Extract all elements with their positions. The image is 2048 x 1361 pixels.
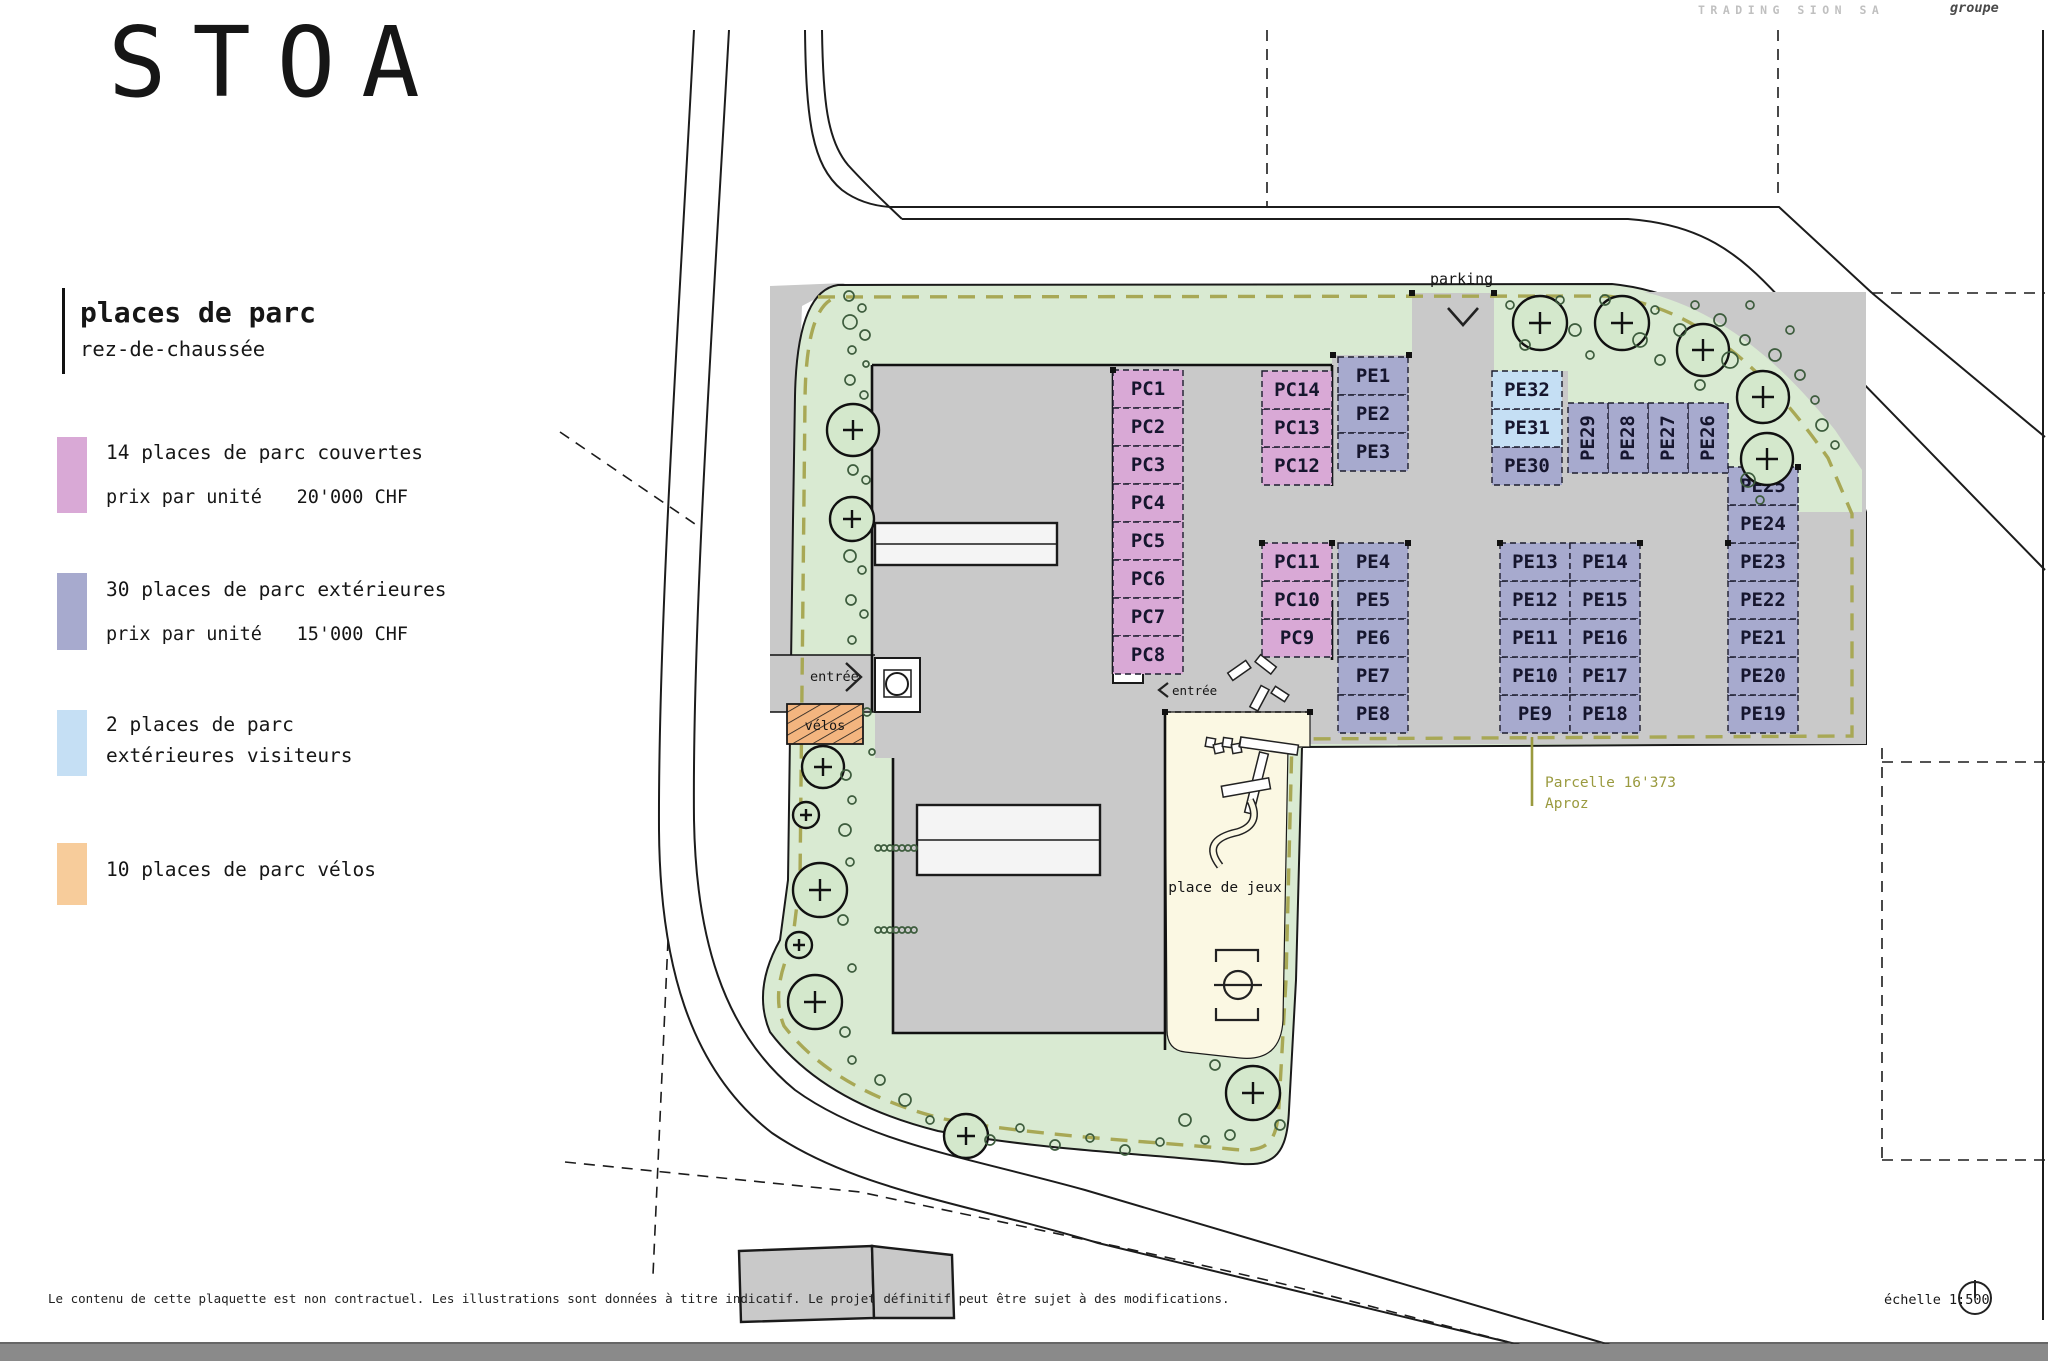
footer: Le contenu de cette plaquette est non co… — [0, 1280, 2048, 1361]
stall-pc14: PC14 — [1262, 371, 1332, 409]
svg-text:PC12: PC12 — [1274, 455, 1320, 477]
stall-pe32-visitor: PE32 — [1492, 371, 1562, 409]
stoa-logo: STOA — [108, 6, 446, 119]
stall-pc9: PC9 — [1262, 619, 1332, 657]
svg-text:PC11: PC11 — [1274, 551, 1320, 573]
stall-pc1: PC1 — [1113, 370, 1183, 408]
svg-text:PE14: PE14 — [1582, 551, 1628, 573]
svg-text:PC7: PC7 — [1131, 606, 1165, 628]
stall-pe23: PE23 — [1728, 543, 1798, 581]
svg-text:PE3: PE3 — [1356, 441, 1390, 463]
stall-pe17: PE17 — [1570, 657, 1640, 695]
stall-pe24: PE24 — [1728, 505, 1798, 543]
svg-text:PC14: PC14 — [1274, 379, 1320, 401]
stall-pc7: PC7 — [1113, 598, 1183, 636]
parking-label: parking — [1430, 270, 1493, 288]
svg-text:PE20: PE20 — [1740, 665, 1786, 687]
svg-text:30 places de parc extérieures: 30 places de parc extérieures — [106, 578, 446, 601]
svg-text:PE30: PE30 — [1504, 455, 1550, 477]
svg-text:prix par unité: prix par unité — [106, 487, 262, 508]
svg-text:PE9: PE9 — [1518, 703, 1552, 725]
svg-text:PE32: PE32 — [1504, 379, 1550, 401]
svg-text:PE27: PE27 — [1657, 415, 1679, 461]
stall-pe4: PE4 — [1338, 543, 1408, 581]
legend-title-bar — [62, 288, 65, 374]
stall-pe19: PE19 — [1728, 695, 1798, 733]
svg-text:PE4: PE4 — [1356, 551, 1390, 573]
stall-pc5: PC5 — [1113, 522, 1183, 560]
svg-text:PE5: PE5 — [1356, 589, 1390, 611]
bottom-bar — [0, 1344, 2048, 1361]
group-logo-text: groupe — [1950, 0, 1999, 16]
svg-text:PC1: PC1 — [1131, 378, 1165, 400]
stall-pc2: PC2 — [1113, 408, 1183, 446]
stall-pc8: PC8 — [1113, 636, 1183, 674]
stair-core — [875, 658, 920, 712]
svg-text:PE31: PE31 — [1504, 417, 1550, 439]
building-strip-lower — [917, 805, 1100, 875]
stall-pe16: PE16 — [1570, 619, 1640, 657]
stall-pe18: PE18 — [1570, 695, 1640, 733]
svg-text:PE7: PE7 — [1356, 665, 1390, 687]
svg-text:PC6: PC6 — [1131, 568, 1165, 590]
svg-text:20'000 CHF: 20'000 CHF — [297, 487, 408, 508]
stall-pe26: PE26 — [1688, 403, 1728, 473]
svg-text:PE1: PE1 — [1356, 365, 1390, 387]
legend-swatch-visitor — [57, 710, 87, 776]
stall-pc3: PC3 — [1113, 446, 1183, 484]
svg-text:14 places de parc couvertes: 14 places de parc couvertes — [106, 441, 423, 464]
stall-pe12: PE12 — [1500, 581, 1570, 619]
stall-pe20: PE20 — [1728, 657, 1798, 695]
stall-pe14: PE14 — [1570, 543, 1640, 581]
stall-pe7: PE7 — [1338, 657, 1408, 695]
svg-text:PE8: PE8 — [1356, 703, 1390, 725]
parcel-number-label: Parcelle 16'373 — [1545, 775, 1676, 791]
stall-pe21: PE21 — [1728, 619, 1798, 657]
svg-text:PE15: PE15 — [1582, 589, 1628, 611]
svg-text:PE21: PE21 — [1740, 627, 1786, 649]
svg-text:PE2: PE2 — [1356, 403, 1390, 425]
svg-text:extérieures visiteurs: extérieures visiteurs — [106, 744, 353, 767]
svg-text:PE16: PE16 — [1582, 627, 1628, 649]
legend-subtitle: rez-de-chaussée — [80, 337, 265, 361]
svg-text:PE18: PE18 — [1582, 703, 1628, 725]
svg-text:PC3: PC3 — [1131, 454, 1165, 476]
stall-pe10: PE10 — [1500, 657, 1570, 695]
legend-item-exterior: 30 places de parc extérieures prix par u… — [57, 573, 446, 650]
legend-title: places de parc — [80, 296, 316, 329]
stall-pe8: PE8 — [1338, 695, 1408, 733]
svg-text:PC8: PC8 — [1131, 644, 1165, 666]
svg-text:PE6: PE6 — [1356, 627, 1390, 649]
svg-text:15'000 CHF: 15'000 CHF — [297, 624, 408, 645]
stall-pe28: PE28 — [1608, 403, 1648, 473]
svg-text:PE29: PE29 — [1577, 415, 1599, 461]
svg-text:PC10: PC10 — [1274, 589, 1320, 611]
stall-pc12: PC12 — [1262, 447, 1332, 485]
stall-pe5: PE5 — [1338, 581, 1408, 619]
svg-text:PE24: PE24 — [1740, 513, 1786, 535]
stall-pc10: PC10 — [1262, 581, 1332, 619]
stall-pe3: PE3 — [1338, 433, 1408, 471]
stall-pe9: PE9 — [1500, 695, 1570, 733]
company-logo-text: TRADING SION SA — [1698, 3, 1884, 17]
parcel-place-label: Aproz — [1545, 796, 1589, 812]
legend-swatch-exterior — [57, 573, 87, 650]
stall-pe11: PE11 — [1500, 619, 1570, 657]
building-strip-upper — [875, 523, 1057, 565]
svg-text:PC9: PC9 — [1280, 627, 1314, 649]
stall-pe27: PE27 — [1648, 403, 1688, 473]
svg-text:PE26: PE26 — [1697, 415, 1719, 461]
stall-pe13: PE13 — [1500, 543, 1570, 581]
svg-text:PE22: PE22 — [1740, 589, 1786, 611]
playground-label: place de jeux — [1168, 880, 1282, 896]
stall-pe1: PE1 — [1338, 357, 1408, 395]
svg-text:prix par unité: prix par unité — [106, 624, 262, 645]
legend-item-bikes: 10 places de parc vélos — [57, 843, 376, 905]
stall-pc4: PC4 — [1113, 484, 1183, 522]
stall-pc6: PC6 — [1113, 560, 1183, 598]
svg-text:PE12: PE12 — [1512, 589, 1558, 611]
legend: places de parc rez-de-chaussée 14 places… — [57, 288, 446, 905]
stall-pe2: PE2 — [1338, 395, 1408, 433]
bike-parking: vélos — [787, 704, 863, 744]
svg-text:PE11: PE11 — [1512, 627, 1558, 649]
svg-text:PE19: PE19 — [1740, 703, 1786, 725]
svg-text:10 places de parc vélos: 10 places de parc vélos — [106, 858, 376, 881]
svg-text:PE23: PE23 — [1740, 551, 1786, 573]
neighbor-building — [739, 1246, 954, 1322]
stall-pe15: PE15 — [1570, 581, 1640, 619]
svg-text:2 places de parc: 2 places de parc — [106, 713, 294, 736]
svg-text:PE10: PE10 — [1512, 665, 1558, 687]
stall-pe6: PE6 — [1338, 619, 1408, 657]
legend-swatch-bikes — [57, 843, 87, 905]
entree-east-label: entrée — [1172, 683, 1217, 698]
stall-pe30: PE30 — [1492, 447, 1562, 485]
svg-text:PC13: PC13 — [1274, 417, 1320, 439]
site-plan-drawing: vélos PC1 PC2 PC3 PC4 PC5 PC6 PC7 PC8 PC… — [0, 0, 2048, 1361]
svg-text:PC5: PC5 — [1131, 530, 1165, 552]
stall-pc11: PC11 — [1262, 543, 1332, 581]
stall-pe22: PE22 — [1728, 581, 1798, 619]
velos-label: vélos — [805, 718, 846, 734]
svg-text:PE17: PE17 — [1582, 665, 1628, 687]
svg-text:PC4: PC4 — [1131, 492, 1165, 514]
svg-text:PC2: PC2 — [1131, 416, 1165, 438]
svg-text:PE13: PE13 — [1512, 551, 1558, 573]
stall-pe31-visitor: PE31 — [1492, 409, 1562, 447]
svg-text:PE28: PE28 — [1617, 415, 1639, 461]
stall-pc13: PC13 — [1262, 409, 1332, 447]
legend-item-visitor: 2 places de parc extérieures visiteurs — [57, 710, 353, 776]
legend-swatch-covered — [57, 437, 87, 513]
site-plan-sheet: vélos PC1 PC2 PC3 PC4 PC5 PC6 PC7 PC8 PC… — [0, 0, 2048, 1361]
scale-label: échelle 1:500 — [1884, 1292, 1990, 1308]
stall-pe29: PE29 — [1568, 403, 1608, 473]
disclaimer-text: Le contenu de cette plaquette est non co… — [48, 1291, 1230, 1306]
entree-west-label: entrée — [810, 669, 859, 685]
legend-item-covered: 14 places de parc couvertes prix par uni… — [57, 437, 423, 513]
